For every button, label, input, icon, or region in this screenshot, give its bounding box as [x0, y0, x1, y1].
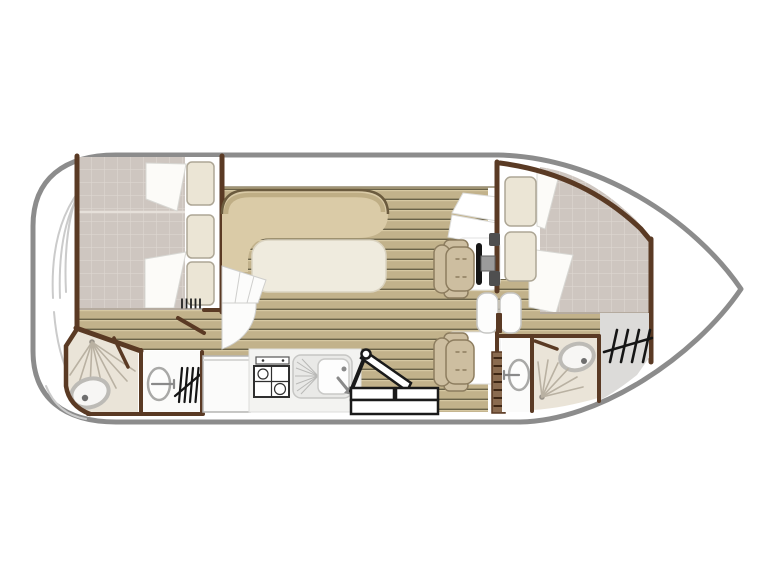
- co-pilot-seat: [434, 333, 474, 391]
- front-cabin: [77, 156, 226, 333]
- pillow: [505, 177, 536, 226]
- pilot-seat: [434, 240, 474, 298]
- saloon-table: [252, 240, 386, 292]
- boat-floorplan: [0, 0, 768, 576]
- instrument-knob: [489, 233, 500, 246]
- pillow: [187, 215, 214, 258]
- toilet-flush: [581, 358, 587, 364]
- pillow: [505, 232, 536, 281]
- galley: [203, 349, 361, 412]
- rear-bathroom: [500, 336, 599, 412]
- toilet-flush: [82, 395, 88, 401]
- floorplan-canvas: [0, 0, 768, 576]
- control-panel: [256, 357, 289, 364]
- sink-icon: [293, 355, 352, 398]
- instrument-knob: [489, 271, 500, 286]
- stove-icon: [254, 366, 289, 397]
- pillow: [187, 162, 214, 205]
- refrigerator: [203, 356, 250, 412]
